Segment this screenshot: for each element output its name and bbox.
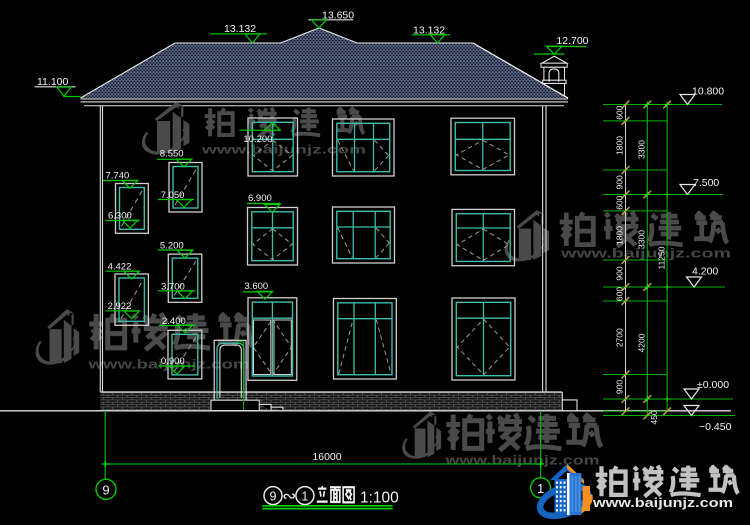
svg-text:9: 9 xyxy=(102,482,109,497)
svg-text:600: 600 xyxy=(615,287,625,301)
svg-text:4200: 4200 xyxy=(637,333,647,352)
svg-text:3.600: 3.600 xyxy=(244,281,268,292)
svg-text:www.baijunjz.com: www.baijunjz.com xyxy=(444,453,599,468)
svg-text:12.700: 12.700 xyxy=(556,35,588,47)
svg-text:1800: 1800 xyxy=(615,226,625,245)
svg-text:900: 900 xyxy=(615,266,625,280)
svg-text:1800: 1800 xyxy=(615,136,625,155)
svg-text:3300: 3300 xyxy=(637,140,647,159)
svg-text:www.baijunjz.com: www.baijunjz.com xyxy=(592,495,733,510)
svg-text:0.900: 0.900 xyxy=(161,356,185,367)
svg-text:900: 900 xyxy=(615,175,625,189)
svg-text:www.baijunjz.com: www.baijunjz.com xyxy=(200,145,366,157)
svg-text:2700: 2700 xyxy=(615,328,625,347)
svg-text:10.200: 10.200 xyxy=(243,134,272,145)
svg-text:9: 9 xyxy=(270,489,277,503)
svg-text:1: 1 xyxy=(537,481,544,496)
svg-text:6.900: 6.900 xyxy=(248,193,272,204)
svg-text:3300: 3300 xyxy=(637,230,647,249)
svg-text:16000: 16000 xyxy=(312,451,341,463)
svg-text:600: 600 xyxy=(615,105,625,119)
svg-text:∾: ∾ xyxy=(282,487,296,506)
svg-text:11250: 11250 xyxy=(657,246,667,269)
svg-text:900: 900 xyxy=(615,380,625,394)
svg-text:7.500: 7.500 xyxy=(693,177,719,189)
svg-text:±0.000: ±0.000 xyxy=(697,379,729,391)
svg-text:10.800: 10.800 xyxy=(692,86,724,98)
svg-text:11.100: 11.100 xyxy=(37,76,68,88)
svg-text:1:100: 1:100 xyxy=(360,490,399,507)
svg-text:4.200: 4.200 xyxy=(692,266,718,278)
svg-text:−0.450: −0.450 xyxy=(699,421,732,433)
svg-text:600: 600 xyxy=(615,195,625,209)
svg-text:1: 1 xyxy=(301,489,308,503)
svg-text:7.740: 7.740 xyxy=(106,171,130,182)
svg-text:8.550: 8.550 xyxy=(160,149,184,160)
svg-text:450: 450 xyxy=(649,410,659,424)
